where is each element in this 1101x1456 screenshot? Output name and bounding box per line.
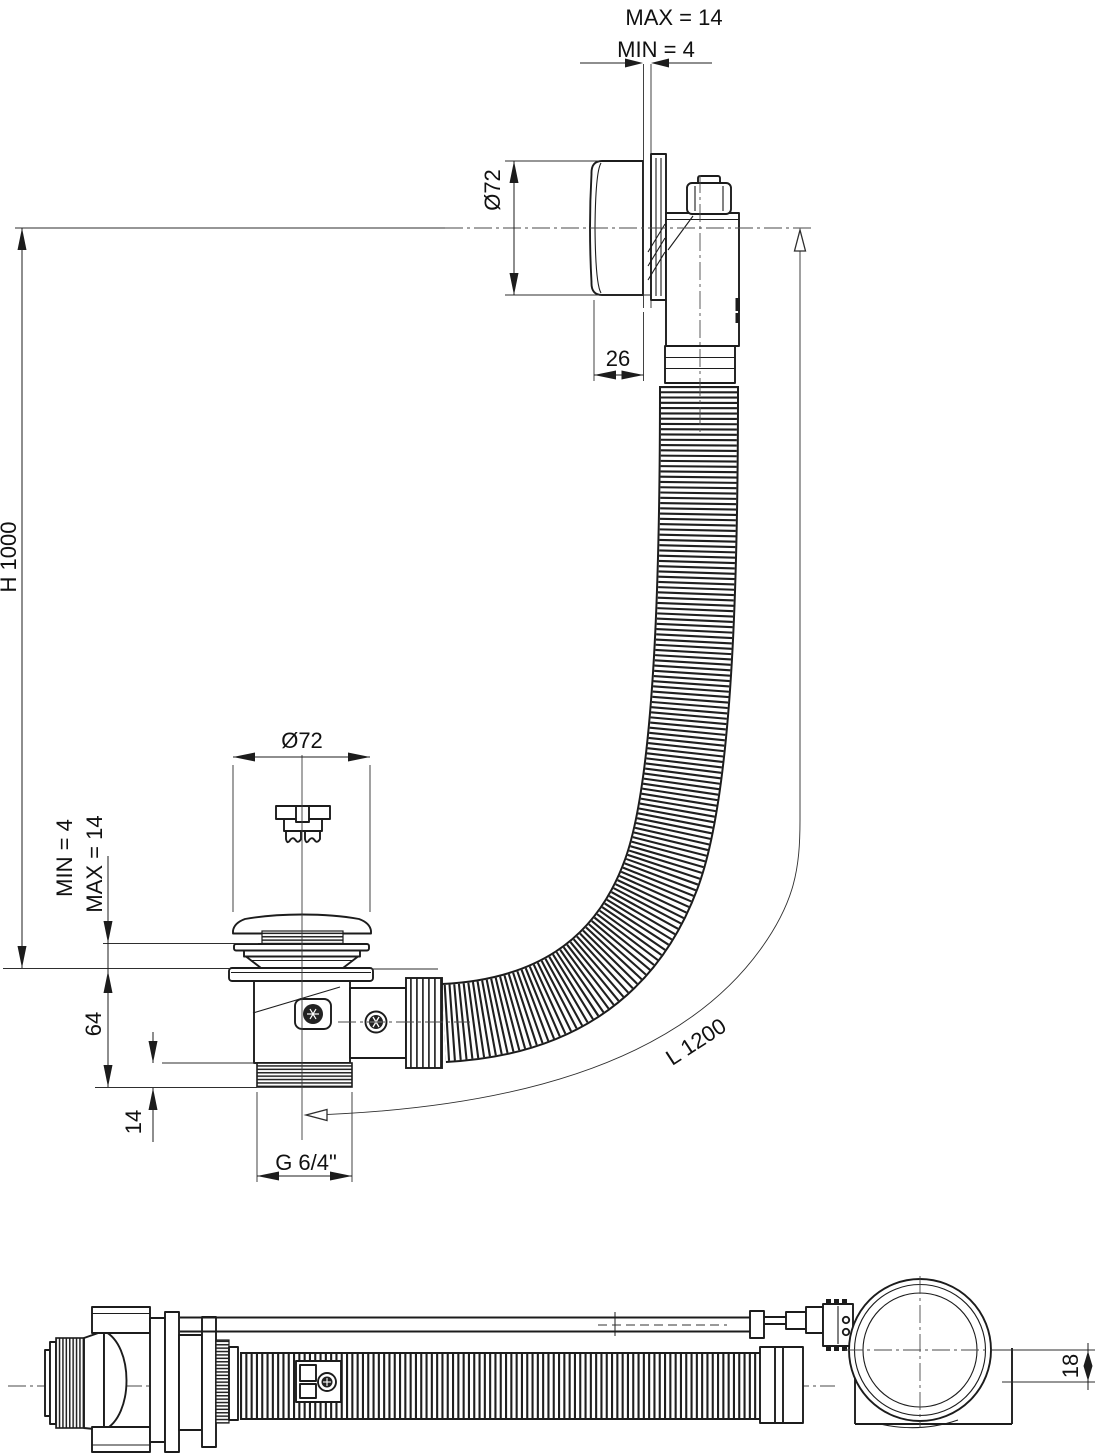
side-hose-clip bbox=[296, 1361, 341, 1402]
side-thread bbox=[56, 1338, 84, 1428]
side-hose-connector bbox=[760, 1347, 803, 1423]
corrugated-hose bbox=[444, 386, 699, 1023]
side-backnut bbox=[202, 1317, 216, 1447]
side-flange bbox=[165, 1312, 179, 1452]
dim-label-thread-size: G 6/4" bbox=[275, 1150, 337, 1175]
waste-drain-assembly bbox=[229, 755, 470, 1140]
main-view bbox=[229, 64, 812, 1140]
dim-label-overflow-diameter: Ø72 bbox=[480, 169, 505, 211]
dim-label-waste-diameter: Ø72 bbox=[281, 728, 323, 753]
dim-label-overflow-offset: 18 bbox=[1058, 1354, 1083, 1378]
hose-nut bbox=[406, 978, 442, 1068]
technical-drawing: MAX = 14 MIN = 4 Ø72 26 bbox=[0, 0, 1101, 1456]
side-gasket bbox=[216, 1340, 229, 1423]
cable-cap bbox=[687, 183, 731, 214]
side-overflow-end bbox=[760, 1276, 1012, 1428]
dim-thread-length: 14 bbox=[121, 1032, 257, 1142]
side-view: 18 bbox=[8, 1276, 1095, 1452]
side-cable-conduit bbox=[180, 1299, 853, 1351]
side-drain-end bbox=[45, 1307, 238, 1452]
dim-overflow-offset: 18 bbox=[990, 1343, 1095, 1390]
dim-label-floor-max: MAX = 14 bbox=[82, 815, 107, 912]
dim-overflow-depth: 26 bbox=[594, 300, 644, 381]
drawing-page: MAX = 14 MIN = 4 Ø72 26 bbox=[0, 0, 1101, 1456]
dim-body-height: 64 bbox=[81, 1012, 257, 1088]
open-arrow-up bbox=[795, 230, 806, 251]
dim-label-height: H 1000 bbox=[0, 522, 21, 593]
seal-washer bbox=[234, 944, 369, 951]
dim-label-wall-min: MIN = 4 bbox=[617, 37, 695, 62]
dim-label-floor-min: MIN = 4 bbox=[52, 819, 77, 897]
overflow-body bbox=[666, 213, 739, 346]
dim-label-thread-length: 14 bbox=[121, 1110, 146, 1134]
dim-label-overflow-depth: 26 bbox=[606, 346, 630, 371]
upper-gasket bbox=[262, 931, 343, 944]
waste-flange bbox=[229, 968, 373, 981]
side-body-dome bbox=[104, 1331, 127, 1430]
plug-key bbox=[276, 806, 330, 842]
dim-thread-size: G 6/4" bbox=[257, 1092, 352, 1182]
open-arrow-left bbox=[306, 1110, 327, 1121]
dim-wall-thickness: MAX = 14 MIN = 4 bbox=[580, 5, 723, 68]
overflow-clip bbox=[736, 298, 741, 311]
waste-thread bbox=[257, 1063, 352, 1087]
dim-label-wall-max: MAX = 14 bbox=[625, 5, 722, 30]
dim-label-body-height: 64 bbox=[81, 1012, 106, 1036]
dim-label-hose-length: L 1200 bbox=[661, 1013, 730, 1070]
